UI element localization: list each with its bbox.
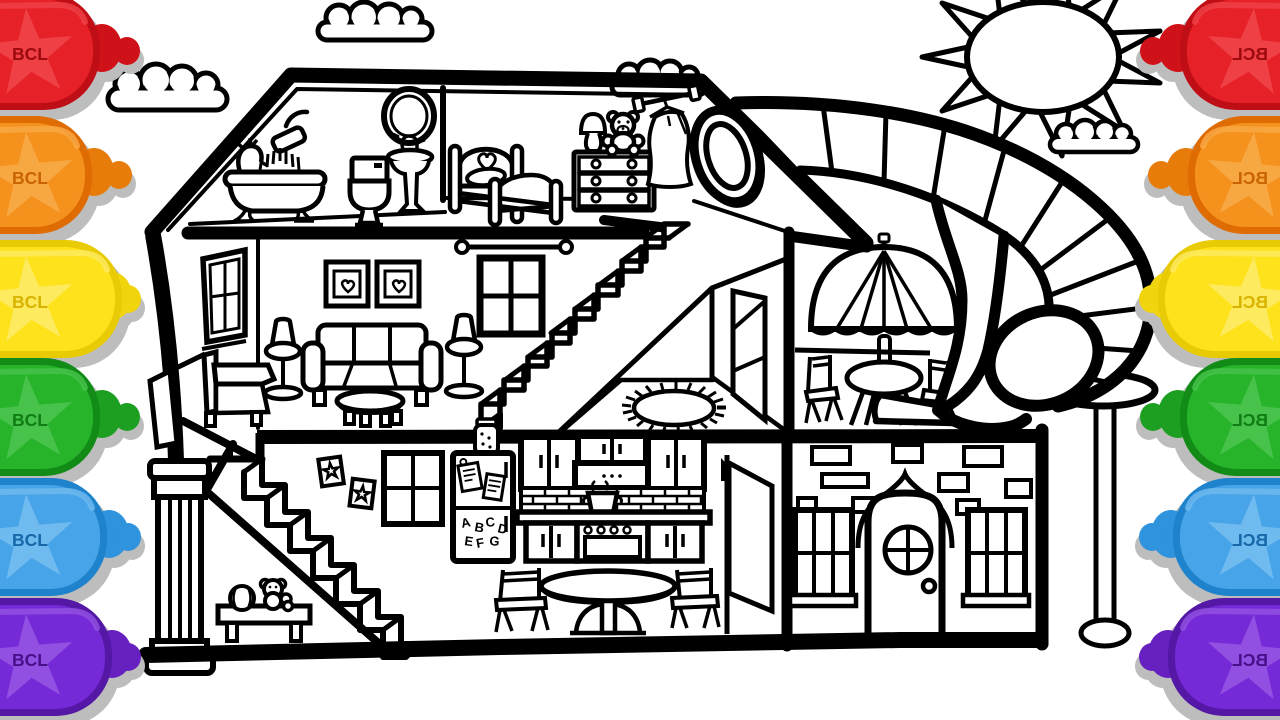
- svg-text:BCL: BCL: [1232, 292, 1268, 312]
- svg-text:G: G: [489, 533, 501, 549]
- svg-text:BCL: BCL: [12, 44, 48, 64]
- svg-text:BCL: BCL: [1232, 650, 1268, 670]
- svg-text:BCL: BCL: [12, 410, 48, 430]
- svg-text:BCL: BCL: [12, 292, 48, 312]
- svg-text:BCL: BCL: [1232, 44, 1268, 64]
- svg-text:BCL: BCL: [1232, 530, 1268, 550]
- svg-text:BCL: BCL: [12, 530, 48, 550]
- svg-text:BCL: BCL: [12, 650, 48, 670]
- svg-text:BCL: BCL: [1232, 410, 1268, 430]
- svg-text:BCL: BCL: [1232, 168, 1268, 188]
- svg-text:BCL: BCL: [12, 168, 48, 188]
